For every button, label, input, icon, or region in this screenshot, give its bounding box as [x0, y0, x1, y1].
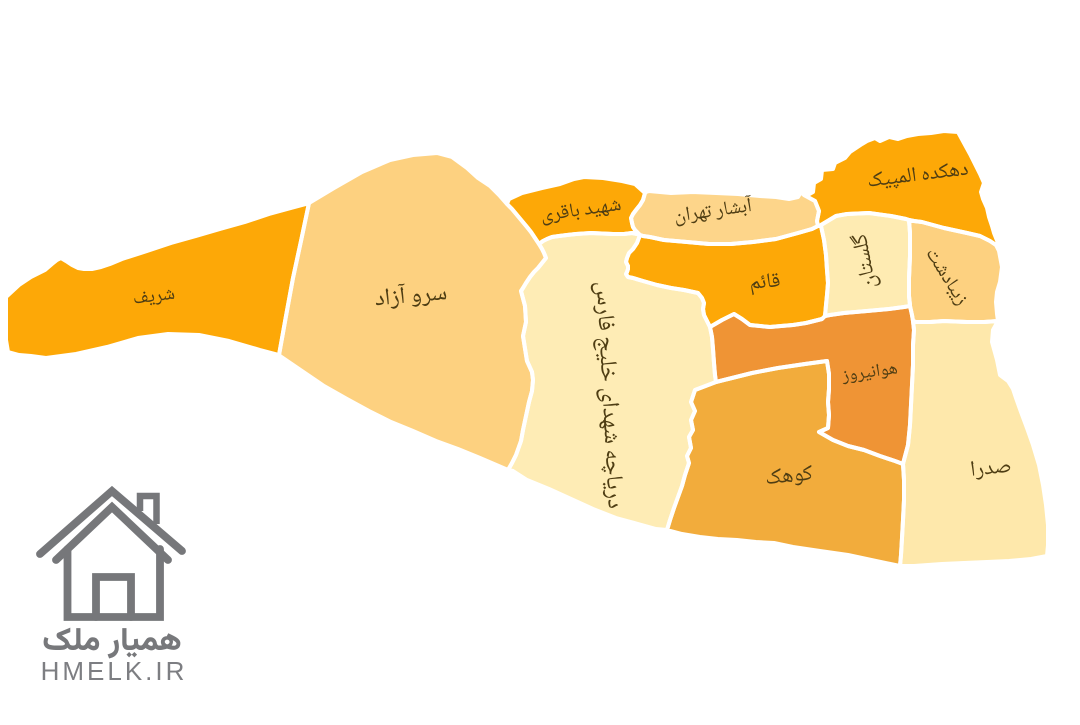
svg-text:HMELK.IR: HMELK.IR [41, 656, 188, 686]
